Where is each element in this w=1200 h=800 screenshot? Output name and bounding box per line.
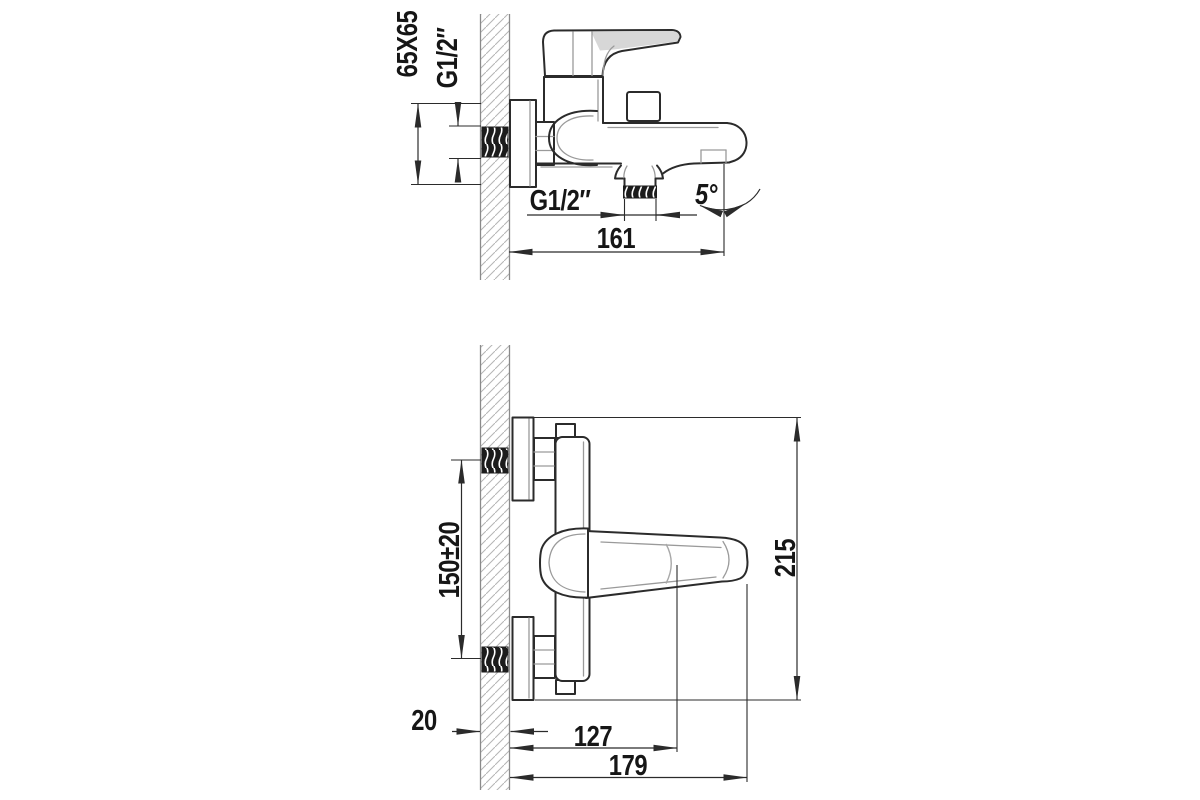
wall-thread-section-lower (482, 647, 508, 672)
wall-thread-section-upper (482, 448, 508, 473)
dim-label-flange-size: 65X65 (391, 11, 424, 78)
spout-nose (727, 123, 747, 163)
connector-stub-upper (556, 424, 575, 438)
hex-nut-upper (534, 438, 555, 480)
dim-label-spout-angle: 5° (695, 178, 718, 211)
dim-label-overall-depth: 179 (609, 749, 647, 782)
shower-outlet (615, 166, 663, 199)
dim-label-spout-reach: 161 (597, 222, 635, 255)
shower-thread-section (624, 186, 657, 198)
aerator (701, 150, 726, 163)
dim-spout-reach: 161 (509, 222, 724, 255)
dim-shower-thread: G1/2″ (527, 184, 697, 221)
dim-overall-depth: 179 (510, 584, 747, 782)
wall-section-bottom-view (481, 345, 510, 790)
wall-thread-section (482, 127, 508, 157)
faucet-plan-view (512, 418, 801, 701)
dim-label-overall-height: 215 (769, 539, 802, 577)
dim-wall-thickness: 20 (411, 704, 548, 737)
escutcheon-plate (510, 100, 536, 187)
dim-label-inlet-thread: G1/2″ (431, 27, 464, 89)
diverter-knob (627, 92, 660, 121)
dim-centers-distance: 150±20 (433, 460, 481, 659)
top-view: 65X65 G1/2″ G1/2″ (391, 11, 760, 280)
dim-label-centers-distance: 150±20 (433, 522, 466, 599)
bottom-view-dimensions: 150±20 215 20 (411, 418, 801, 782)
drawing-page: 65X65 G1/2″ G1/2″ (0, 0, 1200, 800)
dim-inlet-thread: G1/2″ (431, 27, 481, 179)
hex-nut-lower (534, 636, 555, 678)
wall-hatch (481, 345, 509, 790)
dim-label-wall-thickness: 20 (411, 704, 437, 737)
bottom-view: 150±20 215 20 (411, 345, 801, 790)
dim-overall-height: 215 (769, 418, 802, 700)
connector-stub-lower (556, 680, 575, 694)
technical-drawing: 65X65 G1/2″ G1/2″ (0, 0, 1200, 800)
escutcheon-plate-upper (513, 418, 534, 501)
dim-label-spout-center-depth: 127 (574, 720, 612, 753)
faucet-side-view (510, 30, 747, 198)
dim-label-shower-thread: G1/2″ (530, 184, 592, 217)
wall-section-top-view (481, 14, 510, 280)
escutcheon-plate-lower (513, 617, 534, 700)
spout-underside (663, 163, 729, 174)
dim-spout-angle: 5° (695, 164, 760, 256)
